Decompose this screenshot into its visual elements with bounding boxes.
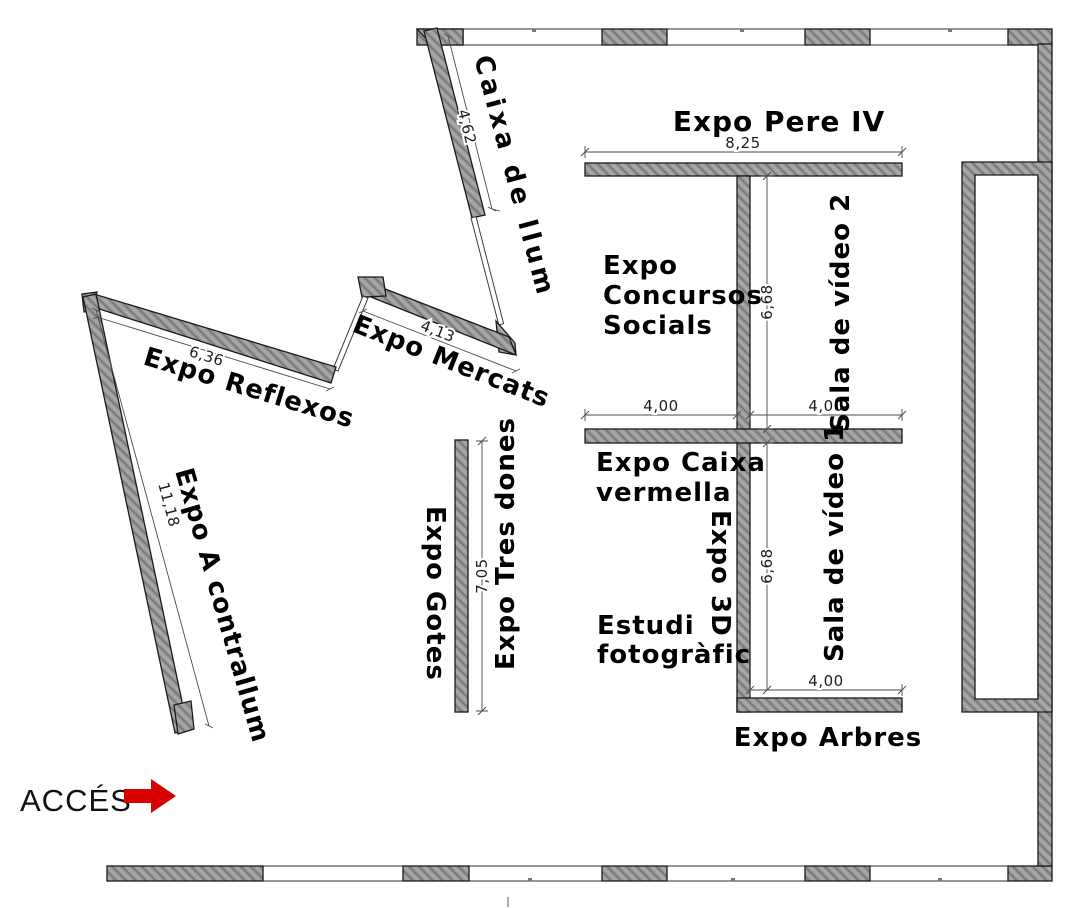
label-expo-concursos-line2: Concursos	[603, 281, 763, 311]
dimension-concursos-width: 4,00	[581, 397, 741, 421]
bottom-wall-pier	[602, 866, 667, 881]
floor-plan-canvas: 8,25 4,00 4,00 4,00 6,68 6,68 7,05 4,62	[0, 0, 1080, 908]
access-marker: ACCÉS	[20, 779, 176, 818]
bottom-wall-pier	[107, 866, 263, 881]
glazing-tick	[528, 878, 532, 881]
label-expo-arbres: Expo Arbres	[734, 723, 923, 753]
glazing-tick	[938, 878, 942, 881]
glazing-tick	[948, 29, 952, 32]
video1-bottom-wall	[737, 698, 902, 712]
bottom-wall-pier	[805, 866, 870, 881]
label-expo-concursos-line3: Socials	[603, 311, 713, 341]
label-caixa-de-llum: Caixa de llum	[467, 52, 561, 301]
label-expo-gotes: Expo Gotes	[420, 506, 450, 681]
label-sala-video-1: Sala de vídeo 1	[820, 423, 850, 662]
label-sala-video-2: Sala de vídeo 2	[826, 193, 856, 432]
glazing-tick	[532, 29, 536, 32]
label-expo-pere-iv: Expo Pere IV	[673, 105, 885, 138]
glazing-tick	[740, 29, 744, 32]
floor-plan: 8,25 4,00 4,00 4,00 6,68 6,68 7,05 4,62	[0, 0, 1080, 908]
pere-iv-wall	[585, 163, 902, 176]
glazing-tick	[731, 878, 735, 881]
mercats-left-corner-block	[358, 277, 386, 297]
access-label: ACCÉS	[20, 783, 132, 818]
top-window-band	[417, 29, 1052, 45]
dimension-tres-dones: 7,05	[473, 437, 491, 715]
label-expo-caixa-vermella-line2: vermella	[596, 478, 732, 508]
gotes-wall	[455, 440, 468, 712]
perimeter-walls	[107, 29, 1052, 907]
bottom-wall-pier	[1008, 866, 1052, 881]
dimension-value: 7,05	[473, 558, 491, 593]
top-wall-pier	[805, 29, 870, 45]
dimension-value: 6,68	[758, 548, 776, 583]
label-estudi-fotografic-line2: fotogràfic	[597, 640, 751, 670]
dimension-value: 4,00	[808, 672, 843, 690]
top-wall-pier	[1008, 29, 1052, 45]
bottom-wall-pier	[403, 866, 469, 881]
label-expo-caixa-vermella-line1: Expo Caixa	[596, 448, 766, 478]
label-expo-concursos-line1: Expo	[603, 251, 678, 281]
center-vertical-wall	[737, 176, 750, 712]
label-estudi-fotografic-line1: Estudi	[597, 611, 695, 641]
label-expo-tres-dones: Expo Tres dones	[491, 417, 521, 670]
service-core-ring	[962, 162, 1052, 712]
room-labels: Caixa de llum Expo Pere IV Expo Concurso…	[140, 52, 922, 753]
top-wall-pier	[602, 29, 667, 45]
label-expo-3d: Expo 3D	[705, 510, 735, 637]
dimension-value: 4,00	[643, 397, 678, 415]
a-contrallum-wall-cap	[174, 701, 194, 734]
window-caixa	[471, 217, 504, 325]
dimension-video1-width: 4,00	[746, 672, 906, 696]
